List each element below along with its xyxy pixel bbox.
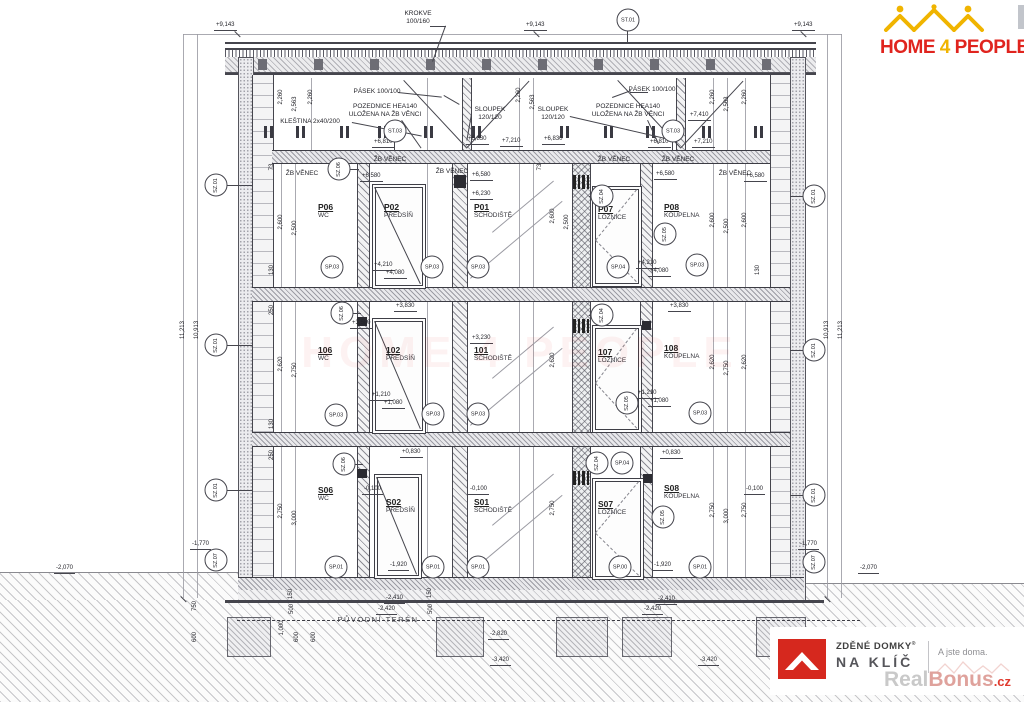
dimension-label: 2,750 — [742, 502, 748, 517]
elevation-label: -2,820 — [488, 631, 509, 640]
callout-text: SP.01 — [693, 564, 707, 570]
dimension-label: 2,563 — [530, 94, 536, 109]
annotation-label: SLOUPEK120/120 — [538, 106, 569, 121]
dimension-label: 2,260 — [308, 89, 314, 104]
annotation-line: PÁSEK 100/100 — [354, 88, 401, 96]
elevation-label: -2,070 — [858, 565, 879, 574]
room-label: P01SCHODIŠTĚ — [474, 203, 512, 220]
dimension-label: 2,620 — [278, 356, 284, 371]
grill-bar — [573, 471, 576, 485]
callout-bubble: SZ.05 — [616, 392, 639, 415]
klestina-tick — [424, 126, 427, 138]
room-label: S06WC — [318, 486, 333, 503]
dimension-label: 2,260 — [516, 87, 522, 102]
footing — [556, 617, 608, 657]
elevation-label: -1,770 — [798, 541, 819, 550]
leader-line — [824, 596, 830, 602]
callout-text: SZ.04 — [599, 189, 605, 204]
right-wall-masonry — [770, 75, 792, 600]
room-number: 107 — [598, 348, 626, 357]
dimension-label: 2,750 — [724, 360, 730, 375]
annotation-label: PŮVODNÍ TERÉN — [337, 616, 418, 624]
callout-bubble: ST.01 — [617, 9, 640, 32]
dimension-label: 3,000 — [292, 510, 298, 525]
dimension-label: 1,000 — [279, 620, 285, 635]
klestina-tick — [760, 126, 763, 138]
grill-bar — [582, 319, 585, 333]
grill-bar — [582, 471, 585, 485]
elevation-label: -2,410 — [384, 595, 405, 604]
callout-bubble: SZ.04 — [591, 304, 614, 327]
klestina-tick — [346, 126, 349, 138]
room-label: S08KOUPELNA — [664, 484, 699, 501]
callout-bubble: SP.04 — [611, 452, 634, 475]
dimension-label: 10,913 — [824, 321, 830, 339]
footer-brand-line1: ZDĚNÉ DOMKY® — [836, 641, 916, 652]
callout-text: SZ.05 — [660, 510, 666, 525]
annotation-line: PÁSEK 100/100 — [629, 86, 676, 94]
callout-text: SZ.04 — [594, 456, 600, 471]
pozednice-block — [314, 59, 323, 70]
dimension-label: 500 — [289, 604, 295, 614]
callout-bubble: ST.03 — [384, 120, 407, 143]
elevation-label: +1,080 — [648, 398, 671, 407]
right-wall-insulation — [790, 57, 806, 602]
callout-bubble: SZ.06 — [328, 158, 351, 181]
pozednice-block — [370, 59, 379, 70]
room-name: SCHODIŠTĚ — [474, 355, 512, 363]
callout-text: SP.01 — [471, 564, 485, 570]
pozednice-block — [706, 59, 715, 70]
annotation-label: ŽB VĚNEC — [662, 156, 695, 164]
steel-plate — [642, 321, 651, 330]
annotation-label: POZEDNICE HEA140ULOŽENA NA ŽB VĚNCI — [592, 103, 665, 118]
dimension-label: 2,620 — [550, 352, 556, 367]
annotation-line: SLOUPEK — [538, 106, 569, 114]
callout-text: SP.03 — [325, 264, 339, 270]
elevation-label: -0,100 — [468, 486, 489, 495]
room-name: PŘEDSÍŇ — [384, 212, 413, 220]
annotation-line: KLEŠTINA 2x40/200 — [280, 118, 340, 126]
room-name: KOUPELNA — [664, 493, 699, 501]
pozednice-block — [538, 59, 547, 70]
leader-line — [533, 31, 539, 37]
room-name: LOŽNICE — [598, 357, 626, 365]
dimension-label: 600 — [311, 632, 317, 642]
leader-line — [800, 31, 806, 37]
sub-base-band — [238, 590, 804, 600]
steel-plate — [357, 469, 367, 478]
room-name: WC — [318, 355, 332, 363]
original-terrain-line — [237, 620, 860, 621]
room-number: 102 — [386, 346, 415, 355]
home4people-icon — [880, 4, 988, 32]
klestina-tick — [296, 126, 299, 138]
room-label: 101SCHODIŠTĚ — [474, 346, 512, 363]
elevation-label: -1,920 — [652, 562, 673, 571]
annotation-line: POZEDNICE HEA140 — [349, 103, 422, 111]
callout-text: SP.00 — [613, 564, 627, 570]
klestina-tick — [264, 126, 267, 138]
leader-line — [226, 345, 252, 346]
leader-line — [234, 31, 240, 37]
dimension-label: 250 — [269, 305, 275, 315]
callout-bubble: SZ.01 — [803, 185, 826, 208]
elevation-label: -2,070 — [54, 565, 75, 574]
dimension-label: 2,620 — [710, 354, 716, 369]
annotation-line: PŮVODNÍ TERÉN — [337, 616, 418, 624]
annotation-line: ŽB VĚNEC — [719, 170, 752, 178]
room-name: WC — [318, 212, 333, 220]
callout-text: SP.04 — [615, 460, 629, 466]
grill-bar — [587, 175, 590, 189]
callout-text: SP.04 — [611, 264, 625, 270]
callout-text: SZ.04 — [599, 308, 605, 323]
callout-text: SZ.06 — [339, 306, 345, 321]
elevation-label: +3,830 — [668, 303, 691, 312]
callout-text: ST.03 — [666, 128, 680, 134]
dimension-label: 2,260 — [742, 89, 748, 104]
annotation-label: ŽB VĚNEC — [374, 156, 407, 164]
elevation-label: -1,920 — [388, 562, 409, 571]
dimension-label: 2,750 — [710, 502, 716, 517]
annotation-label: PÁSEK 100/100 — [629, 86, 676, 94]
elevation-label: +0,830 — [660, 450, 683, 459]
room-number: P02 — [384, 203, 413, 212]
callout-bubble: SP.01 — [467, 556, 490, 579]
room-label: P08KOUPELNA — [664, 203, 699, 220]
callout-text: SZ.01 — [811, 343, 817, 358]
leader-line — [444, 95, 460, 105]
callout-bubble: SP.00 — [609, 556, 632, 579]
klestina-tick — [754, 126, 757, 138]
elevation-label: +9,143 — [524, 22, 547, 31]
klestina-tick — [702, 126, 705, 138]
dimension-label: 11,213 — [838, 321, 844, 339]
scrollbar-fragment[interactable] — [1018, 5, 1024, 29]
callout-bubble: SZ.06 — [333, 453, 356, 476]
callout-text: SZ.01 — [213, 338, 219, 353]
room-number: S02 — [386, 498, 415, 507]
klestina-tick — [430, 126, 433, 138]
room-label: S02PŘEDSÍŇ — [386, 498, 415, 515]
left-wall-masonry — [252, 75, 274, 600]
footing — [436, 617, 484, 657]
dimension-label: 2,600 — [742, 212, 748, 227]
room-label: P06WC — [318, 203, 333, 220]
roof-icon — [778, 639, 826, 679]
dimension-label: 10,913 — [194, 321, 200, 339]
zdene-domky-logo — [778, 639, 826, 679]
dimension-label: 2,750 — [292, 362, 298, 377]
dimension-label: 73 — [537, 164, 543, 171]
room-label: 106WC — [318, 346, 332, 363]
room-number: P06 — [318, 203, 333, 212]
callout-bubble: ST.03 — [662, 120, 685, 143]
room-label: 102PŘEDSÍŇ — [386, 346, 415, 363]
leader-line — [672, 141, 673, 151]
dimension-label: 130 — [269, 419, 275, 429]
elevation-label: -1,770 — [190, 541, 211, 550]
dimension-label: 130 — [755, 265, 761, 275]
steel-plate — [454, 175, 466, 188]
elevation-label: +9,143 — [214, 22, 237, 31]
elevation-label: -2,410 — [656, 596, 677, 605]
callout-text: SP.03 — [425, 264, 439, 270]
room-number: S01 — [474, 498, 512, 507]
elevation-label: +3,830 — [394, 303, 417, 312]
annotation-label: POZEDNICE HEA140ULOŽENA NA ŽB VĚNCI — [349, 103, 422, 118]
callout-text: SZ.01 — [811, 488, 817, 503]
callout-text: SZ.06 — [336, 162, 342, 177]
stair-wall — [452, 150, 468, 595]
elevation-label: -0,100 — [744, 486, 765, 495]
room-number: P08 — [664, 203, 699, 212]
elevation-label: -3,420 — [490, 657, 511, 666]
klestina-tick — [610, 126, 613, 138]
callout-text: SZ.05 — [624, 396, 630, 411]
annotation-line: 120/120 — [475, 114, 506, 122]
room-number: 106 — [318, 346, 332, 355]
callout-bubble: SP.03 — [686, 254, 709, 277]
dimension-label: 2,750 — [278, 503, 284, 518]
callout-text: SP.03 — [690, 262, 704, 268]
elevation-label: +6,830 — [542, 136, 565, 145]
room-label: S01SCHODIŠTĚ — [474, 498, 512, 515]
dimension-label: 3,000 — [724, 508, 730, 523]
elevation-label: -3,420 — [698, 657, 719, 666]
callout-text: SZ.01 — [213, 483, 219, 498]
dimension-label: 2,563 — [292, 96, 298, 111]
base-line — [225, 600, 824, 603]
dimension-label: 130 — [269, 265, 275, 275]
klestina-tick — [270, 126, 273, 138]
callout-text: SP.01 — [426, 564, 440, 570]
elevation-label: +6,230 — [470, 191, 493, 200]
grill-bar — [582, 175, 585, 189]
dimension-label: 150 — [427, 588, 433, 598]
elevation-label: +9,143 — [792, 22, 815, 31]
floor-slab-2 — [252, 432, 790, 447]
callout-bubble: SZ.01 — [803, 484, 826, 507]
grill-bar — [573, 319, 576, 333]
room-label: P07LOŽNICE — [598, 205, 626, 222]
callout-text: SP.03 — [426, 411, 440, 417]
callout-bubble: SZ.06 — [331, 302, 354, 325]
dimension-label: 2,563 — [724, 96, 730, 111]
room-number: 101 — [474, 346, 512, 355]
grill-bar — [578, 175, 581, 189]
callout-bubble: SP.03 — [422, 403, 445, 426]
klestina-tick — [708, 126, 711, 138]
elevation-label: -2,420 — [642, 606, 663, 615]
elevation-label: +7,210 — [500, 138, 523, 147]
elevation-label: +6,830 — [466, 136, 489, 145]
annotation-line: ULOŽENA NA ŽB VĚNCI — [592, 111, 665, 119]
annotation-line: ŽB VĚNEC — [662, 156, 695, 164]
steel-plate — [643, 474, 652, 483]
elevation-label: +4,080 — [384, 270, 407, 279]
pozednice-block — [258, 59, 267, 70]
klestina-tick — [646, 126, 649, 138]
callout-bubble: SP.03 — [421, 256, 444, 279]
annotation-line: 100/160 — [404, 18, 431, 26]
room-name: PŘEDSÍŇ — [386, 355, 415, 363]
annotation-label: SLOUPEK120/120 — [475, 106, 506, 121]
annotation-line: SLOUPEK — [475, 106, 506, 114]
footing — [622, 617, 672, 657]
pozednice-block — [426, 59, 435, 70]
dimension-label: 11,213 — [180, 321, 186, 339]
pozednice-block — [594, 59, 603, 70]
callout-text: SZ.05 — [662, 227, 668, 242]
callout-text: SZ.01 — [213, 178, 219, 193]
floor-slab-1 — [252, 287, 790, 302]
leader-line — [570, 116, 675, 141]
dimension-label: 2,500 — [564, 214, 570, 229]
elevation-label: +6,580 — [360, 173, 383, 182]
elevation-label: +6,580 — [654, 171, 677, 180]
elevation-label: +3,230 — [470, 335, 493, 344]
room-number: S06 — [318, 486, 333, 495]
elevation-label: +3,580 — [350, 320, 373, 329]
callout-bubble: SZ.04 — [591, 185, 614, 208]
room-number: P01 — [474, 203, 512, 212]
elevation-label: +6,580 — [470, 172, 493, 181]
callout-text: SZ.07 — [811, 555, 817, 570]
callout-bubble: SZ.01 — [205, 334, 228, 357]
room-name: SCHODIŠTĚ — [474, 212, 512, 220]
callout-bubble: SP.04 — [607, 256, 630, 279]
room-label: 108KOUPELNA — [664, 344, 699, 361]
elevation-label: +7,410 — [688, 112, 711, 121]
callout-bubble: SP.01 — [689, 556, 712, 579]
callout-text: SP.03 — [693, 410, 707, 416]
home4people-wordmark: HOME 4 PEOPLE — [880, 37, 1020, 59]
dimension-label: 150 — [288, 589, 294, 599]
grill-bar — [578, 471, 581, 485]
dimension-label: 73 — [269, 164, 275, 171]
annotation-line: POZEDNICE HEA140 — [592, 103, 665, 111]
grill-bar — [587, 471, 590, 485]
room-name: LOŽNICE — [598, 214, 626, 222]
home4people-logo: HOME 4 PEOPLE — [880, 4, 1020, 59]
room-name: WC — [318, 495, 333, 503]
leader-line — [349, 169, 359, 170]
callout-bubble: SP.03 — [325, 404, 348, 427]
leader-line — [226, 185, 252, 186]
callout-text: SP.03 — [471, 411, 485, 417]
annotation-label: ŽB VĚNEC — [598, 156, 631, 164]
room-number: 108 — [664, 344, 699, 353]
shaft-wall — [572, 150, 591, 595]
callout-text: SZ.07 — [213, 553, 219, 568]
elevation-label: +7,210 — [692, 139, 715, 148]
door-panel — [592, 325, 642, 433]
annotation-line: ŽB VĚNEC — [286, 170, 319, 178]
room-number: S07 — [598, 500, 626, 509]
dimension-label: 2,260 — [278, 89, 284, 104]
klestina-tick — [566, 126, 569, 138]
callout-bubble: SZ.01 — [803, 339, 826, 362]
room-name: KOUPELNA — [664, 353, 699, 361]
dimension-label: 2,600 — [710, 212, 716, 227]
room-name: LOŽNICE — [598, 509, 626, 517]
elevation-label: +1,080 — [382, 400, 405, 409]
callout-text: SP.03 — [329, 412, 343, 418]
footing — [227, 617, 271, 657]
dimension-label: 2,750 — [550, 500, 556, 515]
annotation-label: KROKVE100/160 — [404, 10, 431, 25]
annotation-line: KROKVE — [404, 10, 431, 18]
room-name: KOUPELNA — [664, 212, 699, 220]
callout-bubble: SP.01 — [325, 556, 348, 579]
annotation-line: ŽB VĚNEC — [436, 168, 469, 176]
dimension-label: 500 — [428, 604, 434, 614]
callout-bubble: SZ.05 — [654, 223, 677, 246]
callout-bubble: SZ.07 — [803, 551, 826, 574]
callout-bubble: SP.03 — [321, 256, 344, 279]
annotation-label: ŽB VĚNEC — [719, 170, 752, 178]
partition-wc — [357, 162, 370, 595]
dimension-label: 2,500 — [724, 218, 730, 233]
elevation-label: +0,830 — [400, 449, 423, 458]
callout-bubble: SZ.01 — [205, 174, 228, 197]
room-name: SCHODIŠTĚ — [474, 507, 512, 515]
callout-text: SZ.01 — [811, 189, 817, 204]
dimension-label: 600 — [192, 632, 198, 642]
dimension-label: 2,600 — [550, 208, 556, 223]
callout-text: SZ.06 — [341, 457, 347, 472]
room-label: P02PŘEDSÍŇ — [384, 203, 413, 220]
leader-line — [180, 596, 186, 602]
callout-bubble: SP.03 — [689, 402, 712, 425]
leader-line — [226, 490, 252, 491]
leader-line — [627, 30, 628, 44]
realbonus-watermark: RealBonus.cz — [884, 668, 1011, 692]
callout-text: ST.03 — [388, 128, 402, 134]
callout-text: ST.01 — [621, 17, 635, 23]
dimension-label: 250 — [269, 450, 275, 460]
room-label: 107LOŽNICE — [598, 348, 626, 365]
grill-bar — [573, 175, 576, 189]
annotation-label: PÁSEK 100/100 — [354, 88, 401, 96]
callout-text: SP.01 — [329, 564, 343, 570]
klestina-tick — [604, 126, 607, 138]
callout-bubble: SZ.07 — [205, 549, 228, 572]
grill-bar — [587, 319, 590, 333]
annotation-label: ŽB VĚNEC — [436, 168, 469, 176]
annotation-label: ŽB VĚNEC — [286, 170, 319, 178]
dimension-label: 2,620 — [742, 354, 748, 369]
callout-text: SP.03 — [471, 264, 485, 270]
room-label: S07LOŽNICE — [598, 500, 626, 517]
footer-tagline: A jste doma. — [938, 647, 988, 657]
grill-bar — [578, 319, 581, 333]
drawing-sheet: P06WCP02PŘEDSÍŇP01SCHODIŠTĚP07LOŽNICEP08… — [0, 0, 1024, 702]
annotation-line: ULOŽENA NA ŽB VĚNCI — [349, 111, 422, 119]
elevation-label: +4,080 — [648, 268, 671, 277]
dimension-label: 600 — [294, 632, 300, 642]
pozednice-block — [762, 59, 771, 70]
dimension-label: 2,500 — [292, 220, 298, 235]
callout-bubble: SP.03 — [467, 256, 490, 279]
annotation-label: KLEŠTINA 2x40/200 — [280, 118, 340, 126]
annotation-line: ŽB VĚNEC — [374, 156, 407, 164]
dimension-label: 2,600 — [278, 214, 284, 229]
dimension-label: 750 — [192, 601, 198, 611]
room-name: PŘEDSÍŇ — [386, 507, 415, 515]
